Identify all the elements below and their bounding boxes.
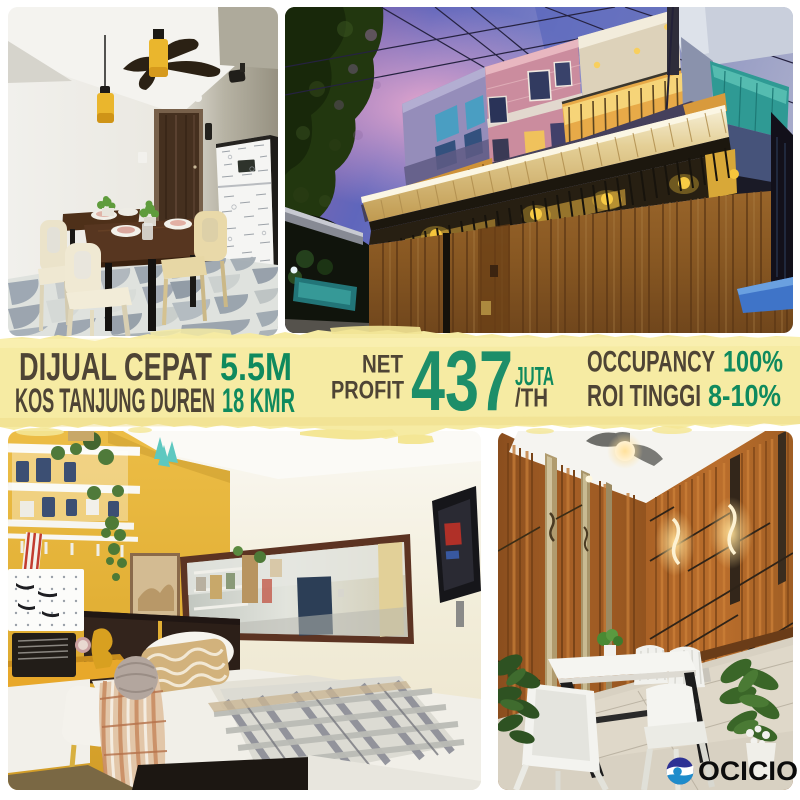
svg-text:OCCUPANCY: OCCUPANCY xyxy=(587,346,715,379)
svg-text:ROI TINGGI: ROI TINGGI xyxy=(587,378,701,413)
svg-text:OCICIO: OCICIO xyxy=(698,756,798,786)
svg-text:437: 437 xyxy=(411,334,513,429)
svg-text:18 KMR: 18 KMR xyxy=(222,382,295,420)
svg-text:/TH: /TH xyxy=(515,383,548,413)
svg-text:KOS TANJUNG DUREN: KOS TANJUNG DUREN xyxy=(15,382,215,420)
svg-text:100%: 100% xyxy=(723,346,783,379)
svg-text:8-10%: 8-10% xyxy=(708,378,781,413)
svg-text:PROFIT: PROFIT xyxy=(331,377,404,405)
svg-text:NET: NET xyxy=(362,351,403,379)
